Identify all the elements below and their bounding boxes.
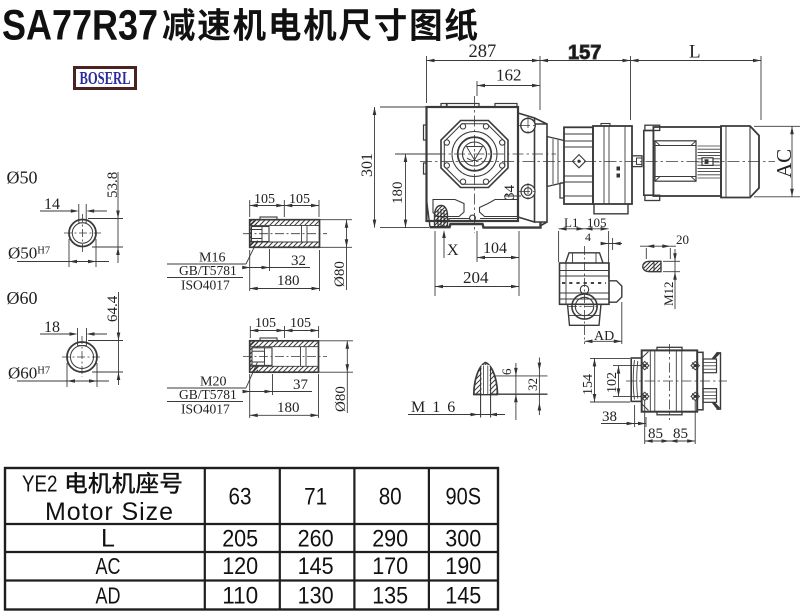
svg-text:260: 260 — [298, 526, 334, 553]
svg-text:120: 120 — [222, 553, 258, 580]
svg-text:BOSERL: BOSERL — [80, 68, 131, 88]
svg-text:Ø60: Ø60 — [7, 288, 38, 308]
svg-text:AD: AD — [594, 329, 614, 344]
svg-text:Motor Size: Motor Size — [45, 498, 173, 526]
svg-text:37: 37 — [293, 377, 309, 393]
svg-text:32: 32 — [525, 378, 540, 391]
svg-text:6: 6 — [499, 368, 514, 375]
svg-text:4: 4 — [585, 230, 591, 244]
svg-text:ISO4017: ISO4017 — [181, 278, 230, 293]
svg-text:154: 154 — [581, 374, 596, 395]
svg-text:M16: M16 — [411, 399, 462, 416]
svg-text:Ø80: Ø80 — [332, 261, 348, 287]
svg-text:80: 80 — [379, 484, 402, 511]
svg-text:162: 162 — [496, 66, 522, 85]
svg-text:301: 301 — [359, 153, 376, 177]
svg-text:90S: 90S — [446, 484, 482, 511]
svg-text:32: 32 — [291, 253, 306, 269]
svg-text:290: 290 — [372, 526, 408, 553]
svg-text:L: L — [689, 42, 701, 63]
svg-text:Ø80: Ø80 — [333, 386, 349, 412]
svg-text:104: 104 — [483, 240, 507, 257]
svg-text:YE2: YE2 — [22, 471, 58, 497]
svg-text:300: 300 — [445, 526, 481, 553]
svg-text:Ø50: Ø50 — [7, 168, 38, 188]
svg-text:145: 145 — [298, 553, 334, 580]
svg-text:GB/T5781: GB/T5781 — [179, 387, 237, 402]
svg-text:34: 34 — [502, 185, 518, 201]
svg-text:53.8: 53.8 — [105, 172, 121, 198]
svg-text:14: 14 — [44, 196, 60, 213]
svg-text:145: 145 — [445, 583, 481, 610]
svg-text:38: 38 — [602, 409, 617, 425]
svg-text:105: 105 — [290, 316, 311, 331]
svg-text:X: X — [447, 242, 459, 259]
svg-text:Ø60H7: Ø60H7 — [8, 364, 50, 383]
svg-text:170: 170 — [372, 553, 408, 580]
svg-text:ISO4017: ISO4017 — [181, 402, 230, 417]
svg-text:287: 287 — [469, 42, 497, 62]
svg-text:180: 180 — [277, 400, 300, 416]
svg-text:180: 180 — [390, 182, 406, 205]
svg-text:AC: AC — [96, 553, 121, 579]
svg-text:130: 130 — [298, 583, 334, 610]
svg-text:205: 205 — [222, 526, 258, 553]
svg-text:190: 190 — [445, 553, 481, 580]
svg-text:110: 110 — [222, 583, 258, 610]
svg-text:63: 63 — [229, 484, 252, 511]
svg-text:18: 18 — [44, 319, 60, 336]
svg-text:AD: AD — [96, 583, 121, 609]
svg-text:180: 180 — [277, 273, 300, 289]
svg-text:GB/T5781: GB/T5781 — [179, 263, 237, 278]
svg-text:71: 71 — [304, 484, 327, 511]
svg-text:85: 85 — [673, 426, 688, 442]
svg-text:M12: M12 — [661, 281, 676, 306]
svg-text:85: 85 — [648, 426, 663, 442]
svg-text:204: 204 — [463, 268, 489, 287]
svg-text:135: 135 — [372, 583, 408, 610]
svg-text:20: 20 — [676, 232, 689, 247]
svg-text:L: L — [101, 525, 115, 553]
svg-text:SA77R37: SA77R37 — [2, 2, 158, 50]
svg-text:Ø50H7: Ø50H7 — [8, 244, 50, 263]
